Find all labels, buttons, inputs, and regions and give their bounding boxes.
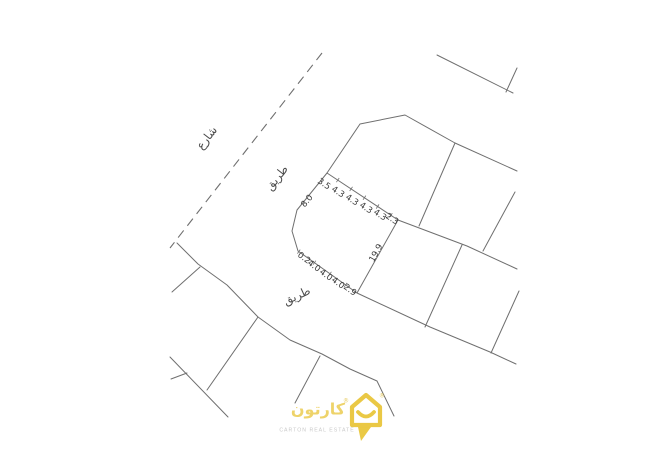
parcel-divider <box>491 291 519 353</box>
block-outline <box>327 115 517 173</box>
parcel-divider <box>425 245 462 327</box>
dim-top-3: 4.3 <box>343 193 360 209</box>
parcel-divider <box>171 373 187 379</box>
logo-registered-icon: ® <box>379 393 385 400</box>
parcel-divider <box>295 356 320 403</box>
upper-parcel-block <box>327 115 517 251</box>
road-label-lower: طريق <box>281 283 313 309</box>
parcel-divider <box>419 143 455 226</box>
road-label-upper: طريق <box>262 162 291 194</box>
dim-top-1: 3.5 <box>315 177 332 193</box>
watermark-logo: كارتون ® CARTON REAL ESTATE ® <box>279 393 385 442</box>
block-boundary-upper <box>398 220 517 269</box>
parcel-divider <box>483 192 515 251</box>
brand-english-text: CARTON REAL ESTATE <box>279 427 354 433</box>
block-boundary-lower <box>357 293 516 364</box>
curved-road-boundary <box>177 243 394 416</box>
parcel-divider <box>172 267 200 292</box>
dim-right: 19.9 <box>367 243 385 264</box>
lowerleft-parcel-block <box>170 243 394 417</box>
plot-boundary-line <box>437 55 513 93</box>
street-dashed-boundary <box>170 53 322 248</box>
plot-boundary-line <box>506 68 517 92</box>
middle-block-boundaries <box>357 220 519 364</box>
cadastral-survey-map: 3.5 4.3 4.3 4.3 4.3 2.3 0.2 4.0 4.0 4.0 … <box>0 0 668 452</box>
survey-drawing-svg: 3.5 4.3 4.3 4.3 4.3 2.3 0.2 4.0 4.0 4.0 … <box>0 0 668 452</box>
dim-top-2: 4.3 <box>329 185 346 201</box>
street-label: شارع <box>193 123 221 152</box>
road-labels: شارع طريق طريق <box>193 123 313 308</box>
wordmark-registered-icon: ® <box>343 398 349 405</box>
topright-clipped-boundaries <box>437 55 517 93</box>
parcel-back-boundary <box>170 357 228 417</box>
dim-left: 8.0 <box>299 193 315 210</box>
dimension-labels: 3.5 4.3 4.3 4.3 4.3 2.3 0.2 4.0 4.0 4.0 … <box>295 177 400 299</box>
logo-house-icon <box>352 395 380 425</box>
brand-arabic-wordmark: كارتون <box>291 400 346 419</box>
dashed-road-line <box>170 53 322 248</box>
parcel-divider <box>207 317 258 390</box>
logo-tail-icon <box>358 427 371 441</box>
